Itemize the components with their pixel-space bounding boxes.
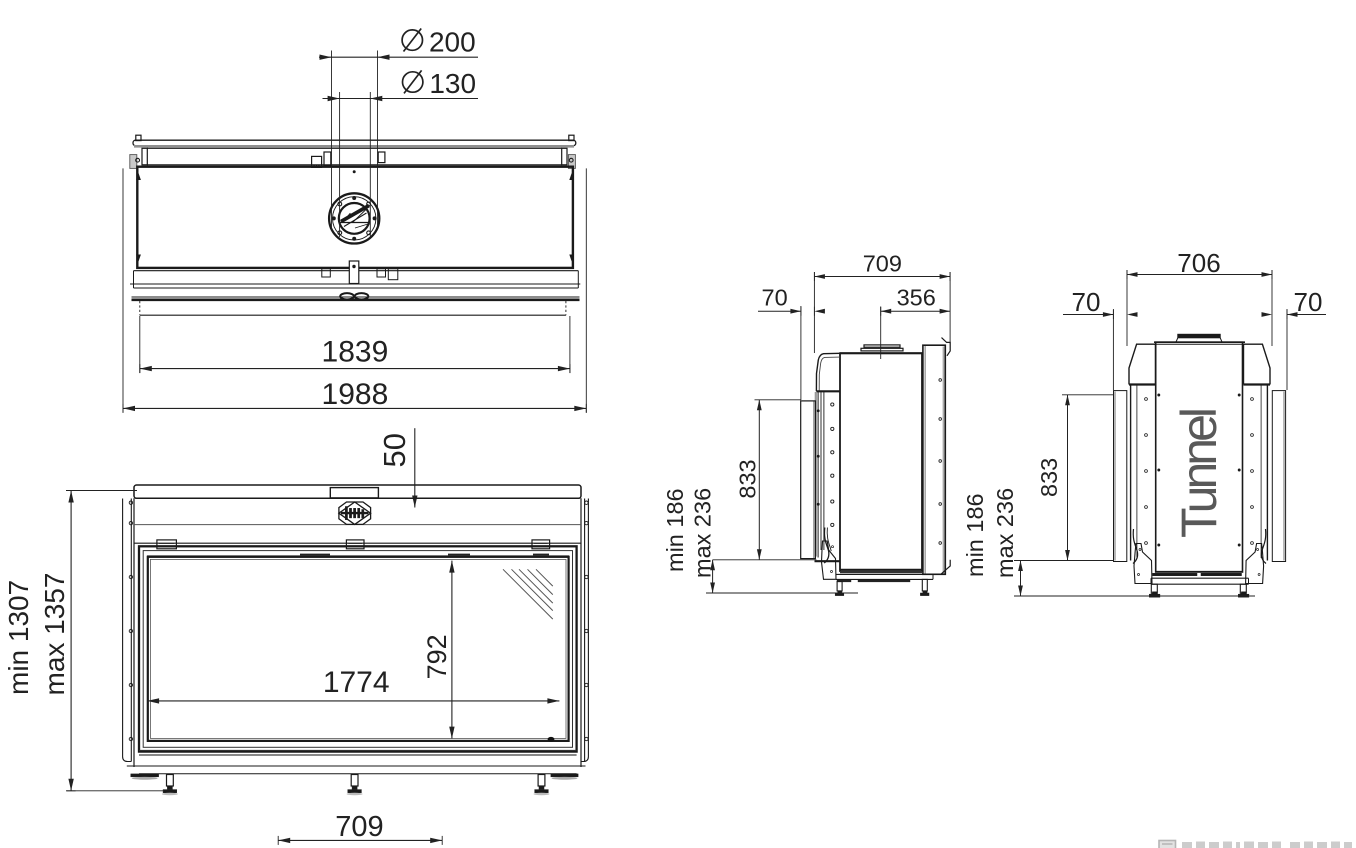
svg-text:1839: 1839	[322, 336, 389, 369]
svg-text:70: 70	[762, 285, 788, 311]
svg-text:792: 792	[422, 634, 452, 679]
svg-text:833: 833	[1036, 458, 1062, 497]
svg-text:1988: 1988	[322, 378, 389, 411]
svg-text:200: 200	[429, 27, 476, 58]
svg-text:70: 70	[1072, 287, 1101, 317]
svg-text:Tunnel: Tunnel	[1171, 410, 1227, 538]
svg-text:max 1357: max 1357	[39, 573, 70, 696]
svg-text:min 186: min 186	[662, 488, 688, 572]
svg-text:70: 70	[1294, 287, 1323, 317]
svg-text:max 236: max 236	[992, 488, 1018, 578]
svg-text:709: 709	[335, 811, 383, 843]
svg-text:min 1307: min 1307	[3, 580, 34, 695]
svg-text:1774: 1774	[323, 666, 390, 699]
svg-text:706: 706	[1177, 248, 1220, 278]
svg-text:50: 50	[377, 433, 412, 467]
svg-text:130: 130	[429, 68, 476, 99]
svg-text:356: 356	[897, 285, 936, 311]
svg-text:833: 833	[735, 459, 761, 498]
svg-text:709: 709	[863, 250, 902, 276]
svg-text:min 186: min 186	[962, 493, 988, 577]
